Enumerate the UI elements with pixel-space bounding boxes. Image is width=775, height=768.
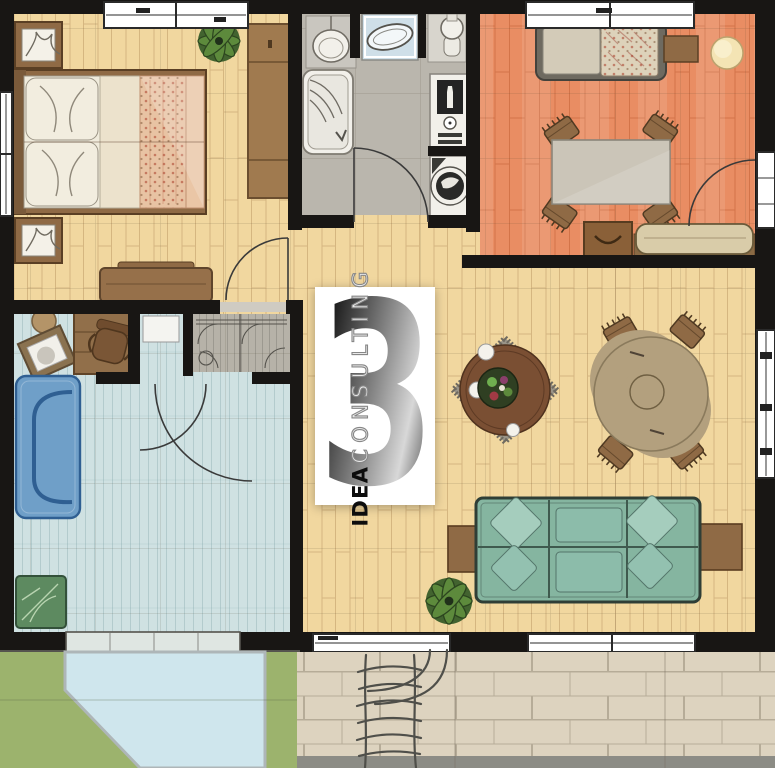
bedroom-bench	[100, 262, 212, 302]
floor-plan: 3 IDEACONSULTING	[0, 0, 775, 768]
nightstand-bottom	[15, 218, 62, 263]
washing-machine	[430, 156, 470, 216]
window-right-living	[757, 330, 775, 478]
vanity-sink	[362, 14, 418, 60]
round-dining-table	[590, 310, 711, 474]
watermark-brand-bold: IDEA	[348, 466, 372, 527]
pillow	[26, 78, 98, 140]
outdoor	[0, 650, 775, 768]
green-sofa	[476, 494, 700, 602]
side-table	[664, 36, 698, 62]
watermark: 3 IDEACONSULTING	[315, 287, 435, 505]
lamp-icon	[711, 37, 743, 69]
toilet	[306, 16, 356, 68]
glass-door-office	[66, 632, 240, 652]
wardrobe	[248, 24, 292, 198]
terracotta-bench	[634, 224, 755, 258]
single-bed	[536, 22, 666, 80]
window-bottom-living	[528, 634, 695, 652]
sofa-side-table	[448, 526, 478, 572]
watermark-brand: IDEACONSULTING	[350, 265, 371, 526]
door-right-terracotta	[757, 152, 775, 228]
window-top-terracotta	[526, 2, 694, 28]
window-top-bedroom	[104, 2, 248, 28]
watermark-number-graphic: 3	[315, 287, 435, 505]
green-mat	[16, 576, 66, 628]
sofa-side-table	[700, 524, 742, 570]
plate	[507, 424, 520, 437]
shelf	[143, 316, 179, 342]
nightstand-top	[15, 22, 62, 68]
plant-icon	[426, 578, 472, 624]
oven-column	[430, 74, 470, 150]
drawer-unit	[584, 222, 632, 258]
pedestal-sink	[428, 14, 466, 62]
window-left-bedroom	[0, 92, 12, 216]
bathtub	[303, 70, 353, 154]
pillow	[26, 142, 98, 206]
double-bed	[14, 70, 206, 214]
plate	[478, 344, 494, 360]
terrace-edge	[297, 756, 775, 768]
watermark-number: 3	[318, 287, 435, 505]
blue-sofa	[16, 376, 80, 518]
watermark-brand-light: CONSULTING	[348, 265, 372, 463]
salad-bowl	[478, 368, 518, 408]
